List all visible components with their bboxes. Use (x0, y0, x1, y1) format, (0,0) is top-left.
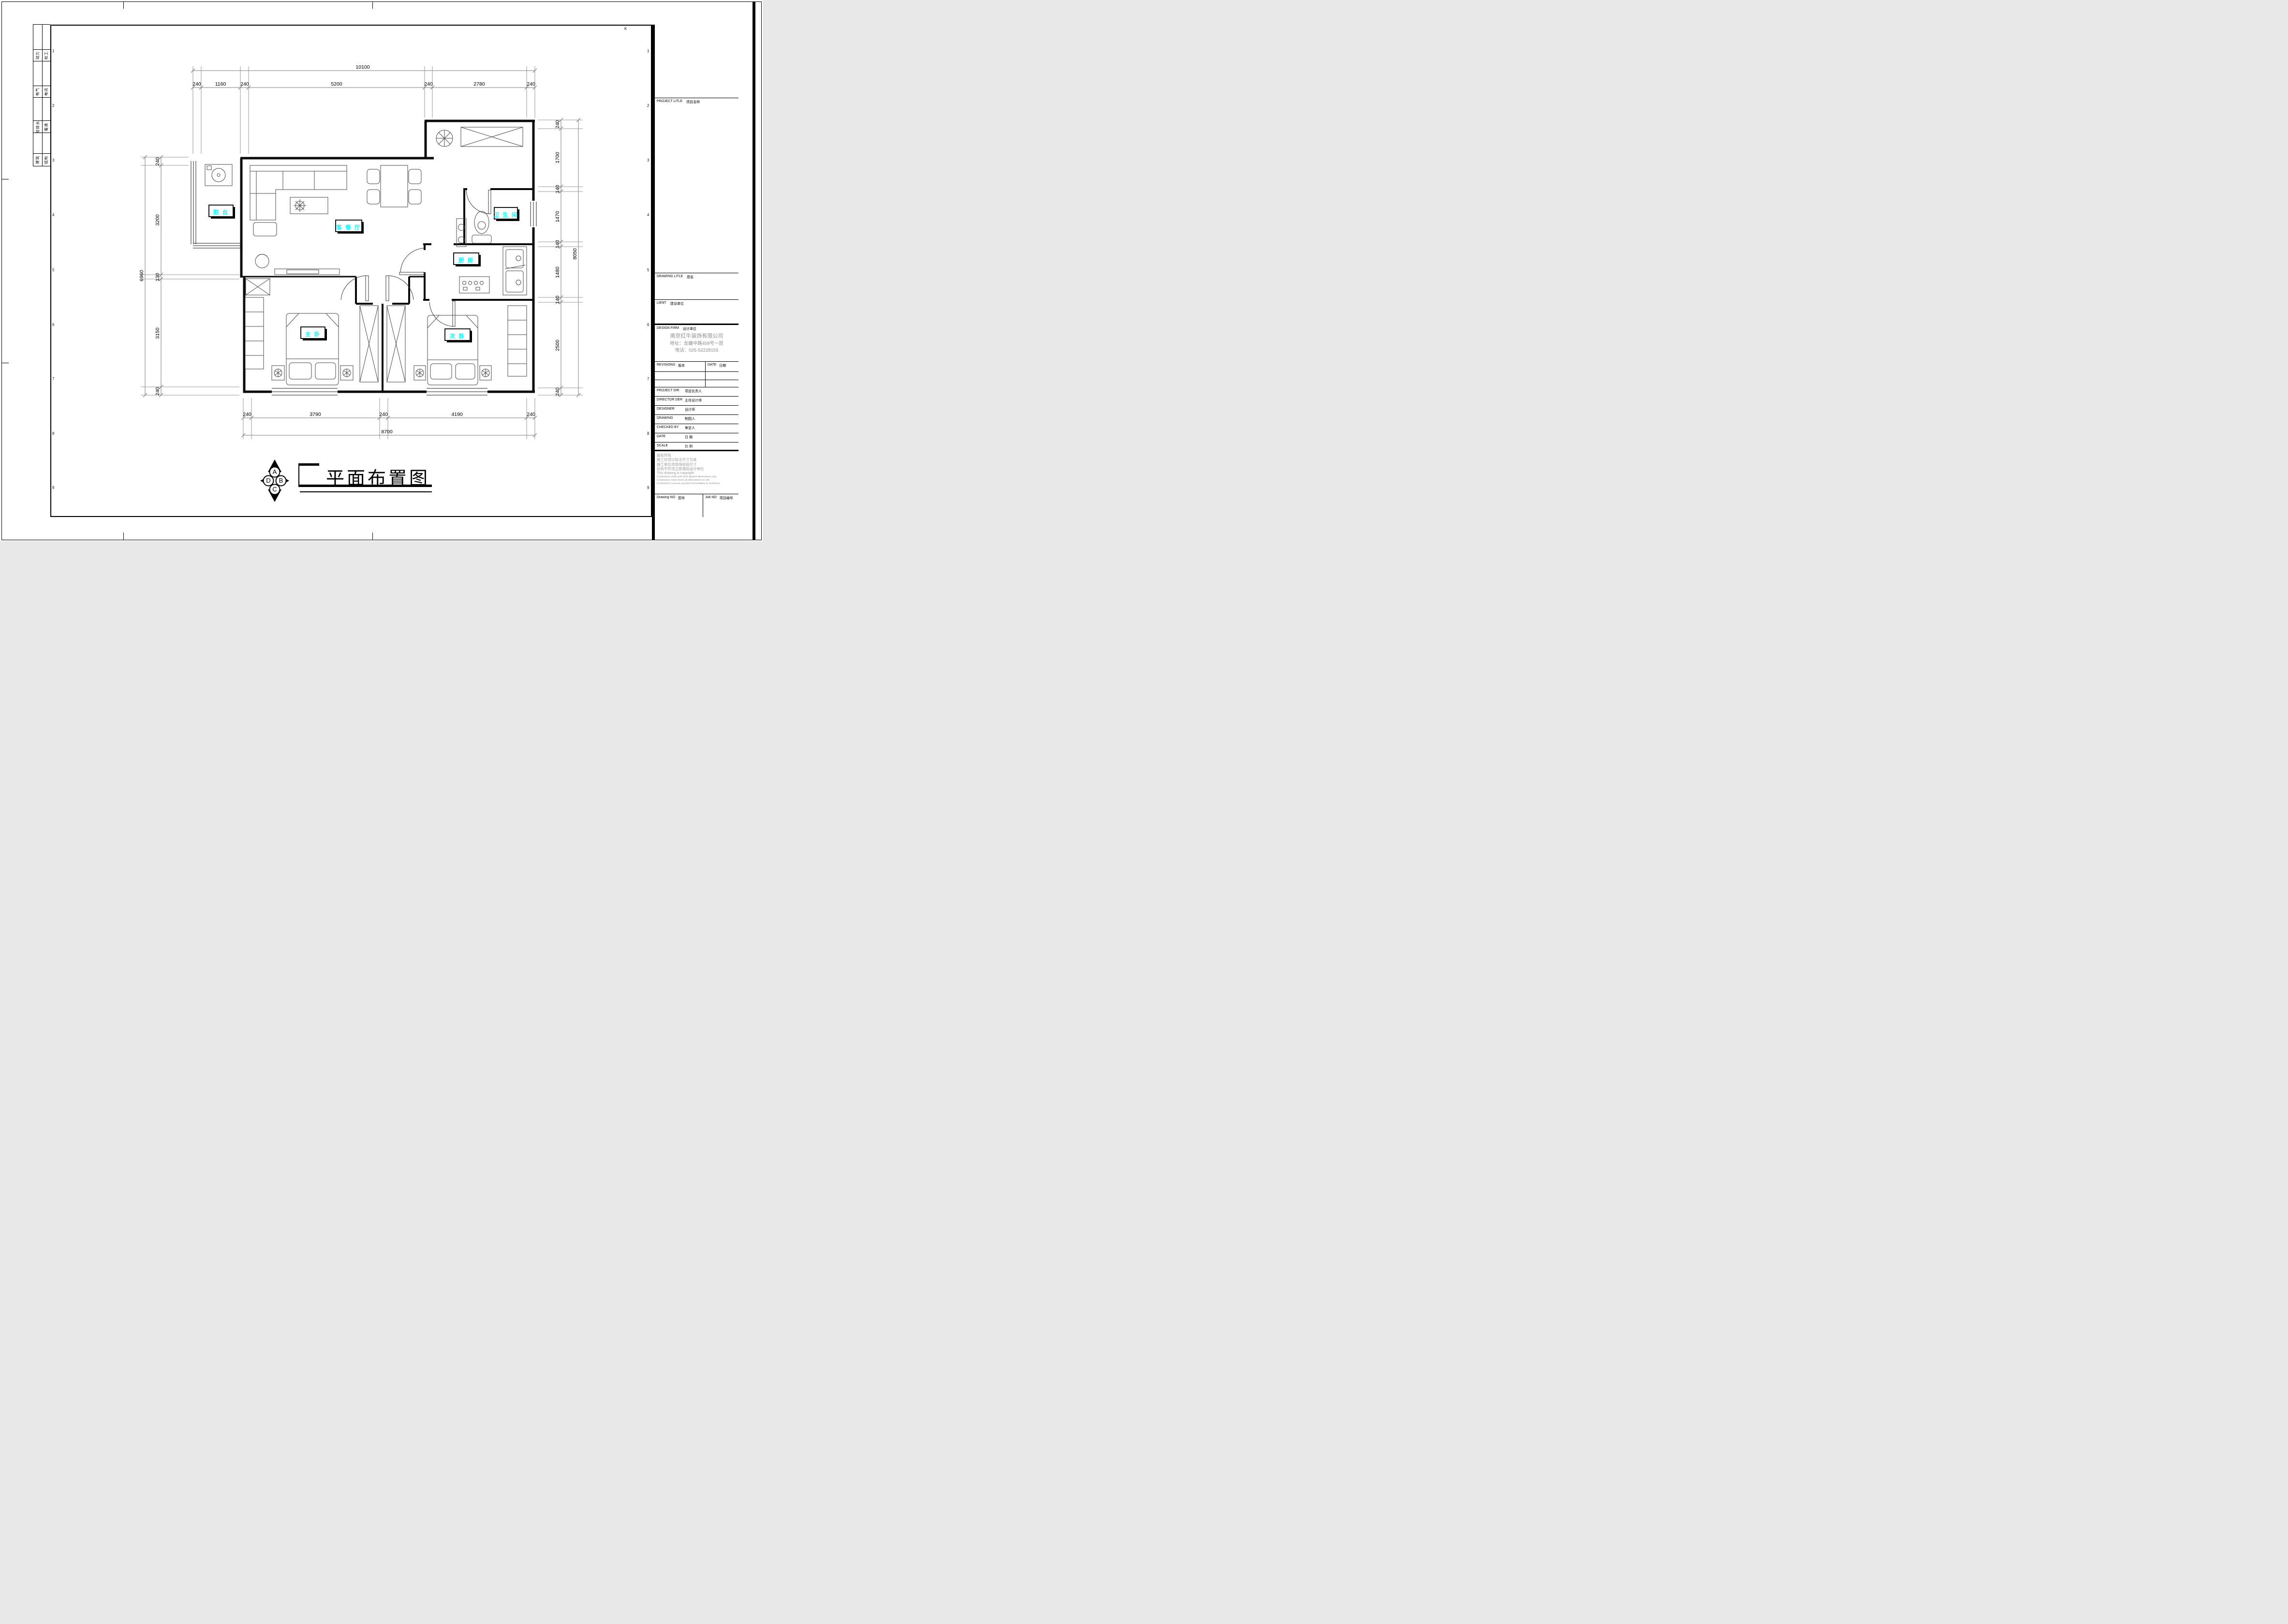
nightstand (480, 366, 491, 380)
kitchen-door-arc (400, 248, 425, 272)
job-no-label: Job NO (705, 496, 717, 501)
svg-text:次 卧: 次 卧 (450, 333, 465, 340)
drawing-person-row: DRAWING制图人 (655, 415, 738, 424)
discipline-cell: 建筑 (33, 154, 42, 166)
room-labels: 阳 台 客 餐 厅 卫 生 间 厨 房 主 卧 (209, 205, 519, 342)
svg-text:240: 240 (243, 412, 251, 417)
svg-text:240: 240 (155, 387, 161, 396)
entry-closet (246, 279, 270, 295)
svg-text:130: 130 (155, 273, 161, 281)
discipline-cell: 电气 (33, 86, 42, 97)
tv-console (275, 269, 340, 275)
border-tick (372, 532, 373, 540)
room-label-bath: 卫 生 间 (494, 207, 519, 221)
bedroom2-door-arc (429, 302, 454, 326)
dim-bottom-total: 8700 (381, 429, 393, 435)
checked-by-row: CHECKED BY审定人 (655, 424, 738, 433)
room-label-living: 客 餐 厅 (336, 220, 364, 234)
firm-info: 南京红牛装饰有限公司 地址：龙蟠中路458号一层 电话：025-52228155 (655, 332, 738, 354)
dining-table (367, 165, 421, 207)
svg-text:240: 240 (555, 387, 561, 396)
svg-text:卫 生 间: 卫 生 间 (494, 211, 518, 218)
svg-text:240: 240 (192, 81, 201, 87)
design-firm-cell: DESIGN FIRM设计单位 南京红牛装饰有限公司 地址：龙蟠中路458号一层… (655, 325, 738, 362)
border-tick (123, 1, 124, 9)
discipline-cell: 校工 (42, 50, 51, 61)
nightstand (414, 366, 426, 380)
client-label: LIENT (657, 301, 666, 306)
svg-text:240: 240 (155, 157, 161, 166)
date-row: DATE日 期 (655, 433, 738, 443)
kitchen-door-leaf (399, 272, 425, 275)
toilet (472, 211, 491, 243)
lounge-chair (255, 254, 269, 268)
bath-door-arc (466, 190, 489, 214)
svg-text:3150: 3150 (155, 327, 161, 339)
second-wardrobe-right (508, 306, 527, 376)
svg-text:1700: 1700 (555, 152, 561, 163)
svg-text:阳 台: 阳 台 (213, 209, 229, 216)
project-dir-row: PROJECT DIR项目负责人 (655, 387, 738, 397)
coffee-table (290, 197, 328, 214)
svg-text:240: 240 (240, 81, 249, 87)
discipline-cell: 暖通 (42, 121, 51, 133)
discipline-cell: 结构 (42, 154, 51, 166)
svg-text:240: 240 (379, 412, 388, 417)
discipline-table: 动力 校工 电气 电讯 给排水 暖通 建筑 结构 (33, 24, 50, 166)
firm-name: 南京红牛装饰有限公司 (655, 332, 738, 340)
svg-text:3200: 3200 (155, 214, 161, 226)
discipline-cell: 电讯 (42, 86, 51, 97)
svg-text:主 卧: 主 卧 (305, 331, 321, 338)
scale-row: SCALE比 例 (655, 443, 738, 451)
design-firm-label: DESIGN FIRM (657, 326, 679, 331)
sofa (250, 165, 347, 236)
drawing-title-label: DRAWING LITLE (657, 275, 683, 280)
title-bracket (298, 463, 299, 486)
drawing-no-row: Drawing NO图号 Job NO项目编号 (655, 494, 738, 517)
svg-text:2780: 2780 (473, 81, 485, 87)
bath-door-leaf (488, 190, 491, 214)
title-underline-thin (300, 491, 432, 492)
drawing-title-cell: DRAWING LITLE图名 (655, 273, 738, 300)
svg-text:240: 240 (424, 81, 433, 87)
svg-text:1470: 1470 (555, 211, 561, 222)
washing-machine (205, 164, 232, 186)
svg-text:2500: 2500 (555, 340, 561, 351)
svg-text:客 餐 厅: 客 餐 厅 (336, 224, 361, 231)
copyright-block: 版权所有 施工时须以标注尺寸为准 施工单位须现场校验尺寸 如有不符须立即通知设计… (655, 451, 738, 494)
revisions-label: REVISIONS (657, 363, 675, 368)
svg-text:240: 240 (555, 120, 561, 129)
svg-text:厨 房: 厨 房 (458, 257, 474, 264)
title-bracket (298, 463, 319, 466)
hall-door-leaf (366, 276, 369, 301)
svg-text:5200: 5200 (331, 81, 342, 87)
svg-text:140: 140 (555, 295, 561, 304)
bedroom2-door-leaf (453, 301, 455, 326)
titleblock-empty-cell (655, 25, 738, 98)
svg-text:240: 240 (527, 412, 535, 417)
nightstand (272, 366, 284, 380)
compass-letter-d: D (266, 477, 270, 484)
title-underline-thick (298, 485, 432, 487)
stove (459, 277, 489, 293)
drawing-no-label: Drawing NO (657, 496, 675, 501)
border-tick (372, 1, 373, 9)
svg-text:3790: 3790 (310, 412, 321, 417)
svg-text:240: 240 (527, 81, 535, 87)
svg-text:1480: 1480 (555, 266, 561, 278)
compass-letter-b: B (279, 477, 283, 484)
director-row: DIRECTOR DER主任设计师 (655, 397, 738, 406)
hall-door-arc (341, 276, 367, 300)
designer-row: DESIGNER设计师 (655, 406, 738, 415)
nightstand (340, 366, 353, 380)
svg-text:1160: 1160 (215, 81, 226, 87)
project-title-label: PROJECT LITLE (657, 100, 682, 104)
firm-address: 地址：龙蟠中路458号一层 (655, 340, 738, 347)
border-tick (123, 532, 124, 540)
dim-extension-lines (141, 66, 583, 439)
revisions-header-row: REVISIONS版本 DATE日期 (655, 362, 738, 372)
revision-empty-row (655, 372, 738, 380)
room-label-master: 主 卧 (301, 327, 327, 340)
dim-right-total: 8050 (572, 248, 578, 260)
discipline-cell: 动力 (33, 50, 42, 61)
master-bed (286, 313, 339, 385)
border-tick (1, 179, 9, 179)
kitchen-sink (503, 247, 527, 295)
windows (191, 161, 536, 395)
master-wardrobe-x (360, 306, 378, 382)
master-wardrobe-left (245, 297, 264, 369)
discipline-cell: 给排水 (33, 121, 42, 133)
dim-lines (145, 71, 578, 435)
dim-top-total: 10100 (355, 64, 369, 70)
dim-left-total: 6960 (139, 270, 145, 281)
project-title-cell: PROJECT LITLE项目名称 (655, 98, 738, 273)
svg-text:4190: 4190 (451, 412, 463, 417)
outer-walls (240, 121, 535, 393)
storage-cabinet (461, 127, 523, 147)
svg-text:140: 140 (555, 185, 561, 193)
floor-plan: 10100 240 1160 240 5200 240 2780 240 240… (50, 25, 652, 517)
compass-letter-c: C (272, 486, 277, 493)
drawing-sheet: 动力 校工 电气 电讯 给排水 暖通 建筑 结构 1 2 3 4 5 6 7 8… (0, 0, 763, 541)
sheet-right-border (753, 1, 755, 540)
room-label-kitchen: 厨 房 (454, 253, 481, 266)
date-col-label: DATE (708, 363, 716, 368)
title-block: PROJECT LITLE项目名称 DRAWING LITLE图名 LIENT建… (655, 25, 738, 517)
second-wardrobe-x (387, 306, 405, 382)
firm-phone: 电话：025-52228155 (655, 347, 738, 354)
client-cell: LIENT建设单位 (655, 300, 738, 325)
revision-empty-row (655, 380, 738, 387)
compass-letter-a: A (273, 468, 277, 475)
border-tick (1, 363, 9, 363)
svg-text:140: 140 (555, 240, 561, 249)
hall-door-leaf (386, 276, 389, 301)
room-label-second: 次 卧 (445, 329, 472, 342)
room-label-balcony: 阳 台 (209, 205, 235, 219)
orientation-compass: A B C D (260, 459, 289, 502)
exhaust-fan (436, 130, 453, 147)
